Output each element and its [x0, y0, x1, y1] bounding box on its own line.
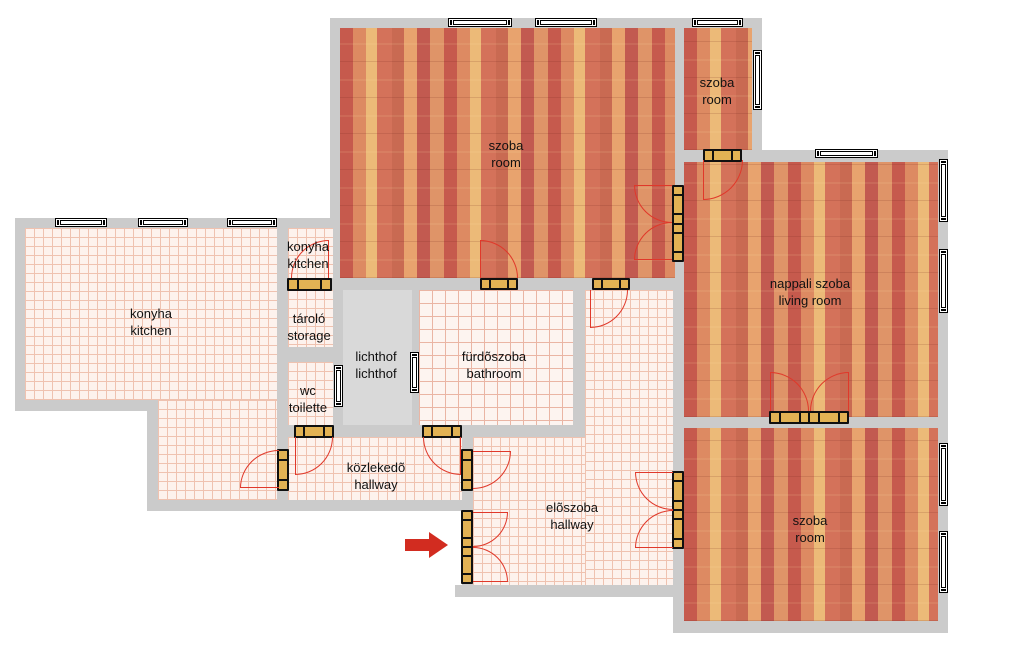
- wall: [15, 218, 25, 411]
- floor-plan: szobaroom szobaroom nappali szobaliving …: [0, 0, 1024, 649]
- room-label-lichthof: lichthoflichthof: [336, 348, 416, 382]
- room-label-szoba-bottom: szobaroom: [760, 512, 860, 546]
- window: [55, 218, 107, 227]
- window: [939, 159, 948, 222]
- window: [815, 149, 878, 158]
- door-sill-double: [672, 471, 684, 549]
- entrance-arrow-icon: [405, 532, 448, 558]
- room-label-eloszoba: elõszobahallway: [512, 499, 632, 533]
- door-sill-double: [672, 185, 684, 262]
- door-sill-double: [769, 411, 849, 424]
- wall: [15, 400, 158, 411]
- window: [138, 218, 188, 227]
- window: [939, 249, 948, 313]
- door-sill: [480, 278, 518, 290]
- wall: [147, 400, 158, 511]
- room-label-tarolo: tárolóstorage: [269, 310, 349, 344]
- window: [535, 18, 597, 27]
- room-label-szoba-small: szobaroom: [677, 74, 757, 108]
- window: [692, 18, 743, 27]
- wall: [573, 285, 585, 430]
- room-label-konyha-large: konyhakitchen: [101, 305, 201, 339]
- window: [448, 18, 512, 27]
- door-sill-entrance: [461, 510, 473, 584]
- room-label-furdoszoba: fürdõszobabathroom: [434, 348, 554, 382]
- window: [227, 218, 277, 227]
- door-sill: [461, 449, 473, 491]
- room-label-kozlekedo: közlekedõhallway: [316, 459, 436, 493]
- door-sill: [287, 278, 332, 291]
- wall: [455, 585, 685, 597]
- room-label-wc: wctoilette: [268, 382, 348, 416]
- wall: [288, 347, 333, 362]
- door-sill: [592, 278, 630, 290]
- window: [939, 443, 948, 506]
- wall: [675, 621, 948, 633]
- room-label-nappali: nappali szobaliving room: [735, 275, 885, 309]
- room-label-szoba-top: szobaroom: [456, 137, 556, 171]
- room-label-konyha-small: konyhakitchen: [268, 238, 348, 272]
- window: [939, 531, 948, 593]
- wall: [147, 500, 473, 511]
